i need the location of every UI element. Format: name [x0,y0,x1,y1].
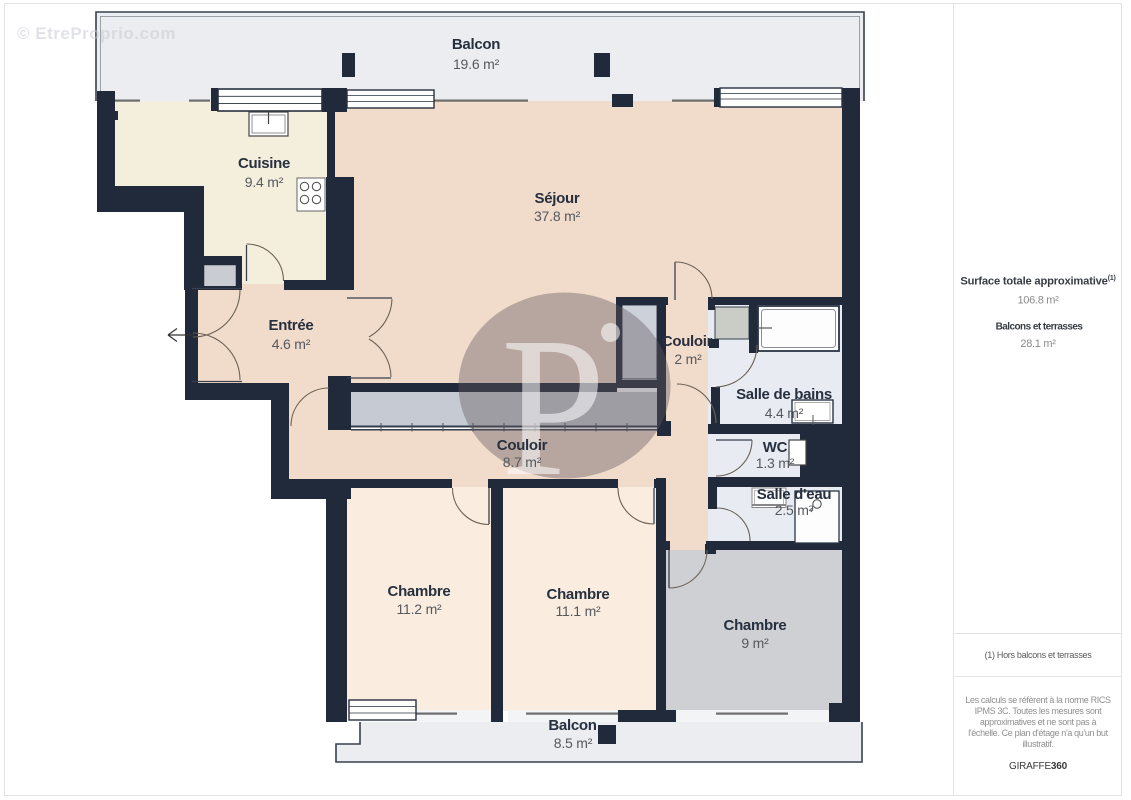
svg-text:Chambre: Chambre [388,583,451,600]
svg-text:11.1 m²: 11.1 m² [555,603,601,619]
svg-text:Salle d'eau: Salle d'eau [757,486,832,503]
svg-text:WC: WC [763,439,788,456]
svg-text:illustratif.: illustratif. [1022,739,1053,749]
svg-text:Couloir: Couloir [662,333,713,350]
svg-text:GIRAFFE360: GIRAFFE360 [1009,761,1068,772]
svg-text:IPMS 3C. Toutes les mesures so: IPMS 3C. Toutes les mesures sont [975,706,1103,716]
svg-text:1.3 m²: 1.3 m² [756,455,795,471]
svg-text:Séjour: Séjour [535,190,580,207]
svg-text:Entrée: Entrée [269,317,314,334]
svg-text:Cuisine: Cuisine [238,155,290,172]
svg-text:28.1 m²: 28.1 m² [1020,338,1056,350]
svg-text:8.7 m²: 8.7 m² [503,454,542,470]
svg-text:9.4 m²: 9.4 m² [245,174,284,190]
svg-text:37.8 m²: 37.8 m² [534,208,581,224]
svg-text:4.4 m²: 4.4 m² [765,405,804,421]
svg-text:Balcon: Balcon [548,717,596,734]
svg-text:(1) Hors balcons et terrasses: (1) Hors balcons et terrasses [985,650,1093,660]
svg-text:Chambre: Chambre [547,586,610,603]
svg-text:2.5 m²: 2.5 m² [775,502,814,518]
svg-text:2 m²: 2 m² [674,351,702,367]
svg-text:Surface totale approximative(1: Surface totale approximative(1) [960,275,1115,288]
svg-text:© EtreProprio.com: © EtreProprio.com [17,24,176,43]
svg-text:4.6 m²: 4.6 m² [272,336,311,352]
svg-text:8.5 m²: 8.5 m² [554,735,593,751]
svg-text:Balcon: Balcon [452,36,500,53]
svg-text:Les calculs se réfèrent à la n: Les calculs se réfèrent à la norme RICS [965,695,1111,705]
svg-text:Balcons et terrasses: Balcons et terrasses [996,322,1084,333]
svg-text:19.6 m²: 19.6 m² [453,56,500,72]
svg-text:l'échelle. Ce plan d'étage n'a: l'échelle. Ce plan d'étage n'a qu'un but [968,728,1108,738]
svg-text:106.8 m²: 106.8 m² [1017,295,1059,307]
svg-text:9 m²: 9 m² [741,635,769,651]
svg-text:Couloir: Couloir [497,437,548,454]
svg-text:11.2 m²: 11.2 m² [396,601,442,617]
svg-text:Salle de bains: Salle de bains [736,386,832,403]
svg-text:approximatives et ne sont pas: approximatives et ne sont pas à [980,717,1097,727]
svg-text:Chambre: Chambre [724,617,787,634]
svg-text:P: P [501,296,606,518]
